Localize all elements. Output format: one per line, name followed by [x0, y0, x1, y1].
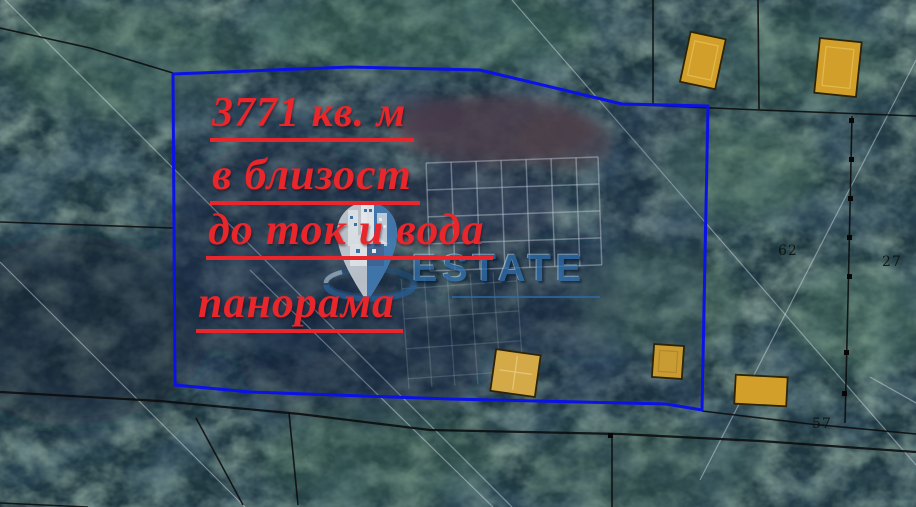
building — [680, 32, 726, 89]
annotation-line-3: до ток и вода — [206, 208, 493, 260]
parcel-number: 27 — [882, 254, 902, 270]
building — [652, 344, 684, 379]
building — [814, 38, 862, 97]
parcel-number: 57 — [812, 416, 832, 432]
annotation-line-2: в близост — [210, 153, 420, 205]
building — [490, 349, 540, 397]
satellite-map: 62 27 57 — [0, 0, 916, 507]
building — [734, 375, 787, 407]
parcel-number: 62 — [778, 243, 798, 259]
annotation-area: 3771 кв. м — [210, 92, 414, 142]
brand-underline — [452, 296, 600, 298]
annotation-line-4: панорама — [196, 281, 403, 333]
